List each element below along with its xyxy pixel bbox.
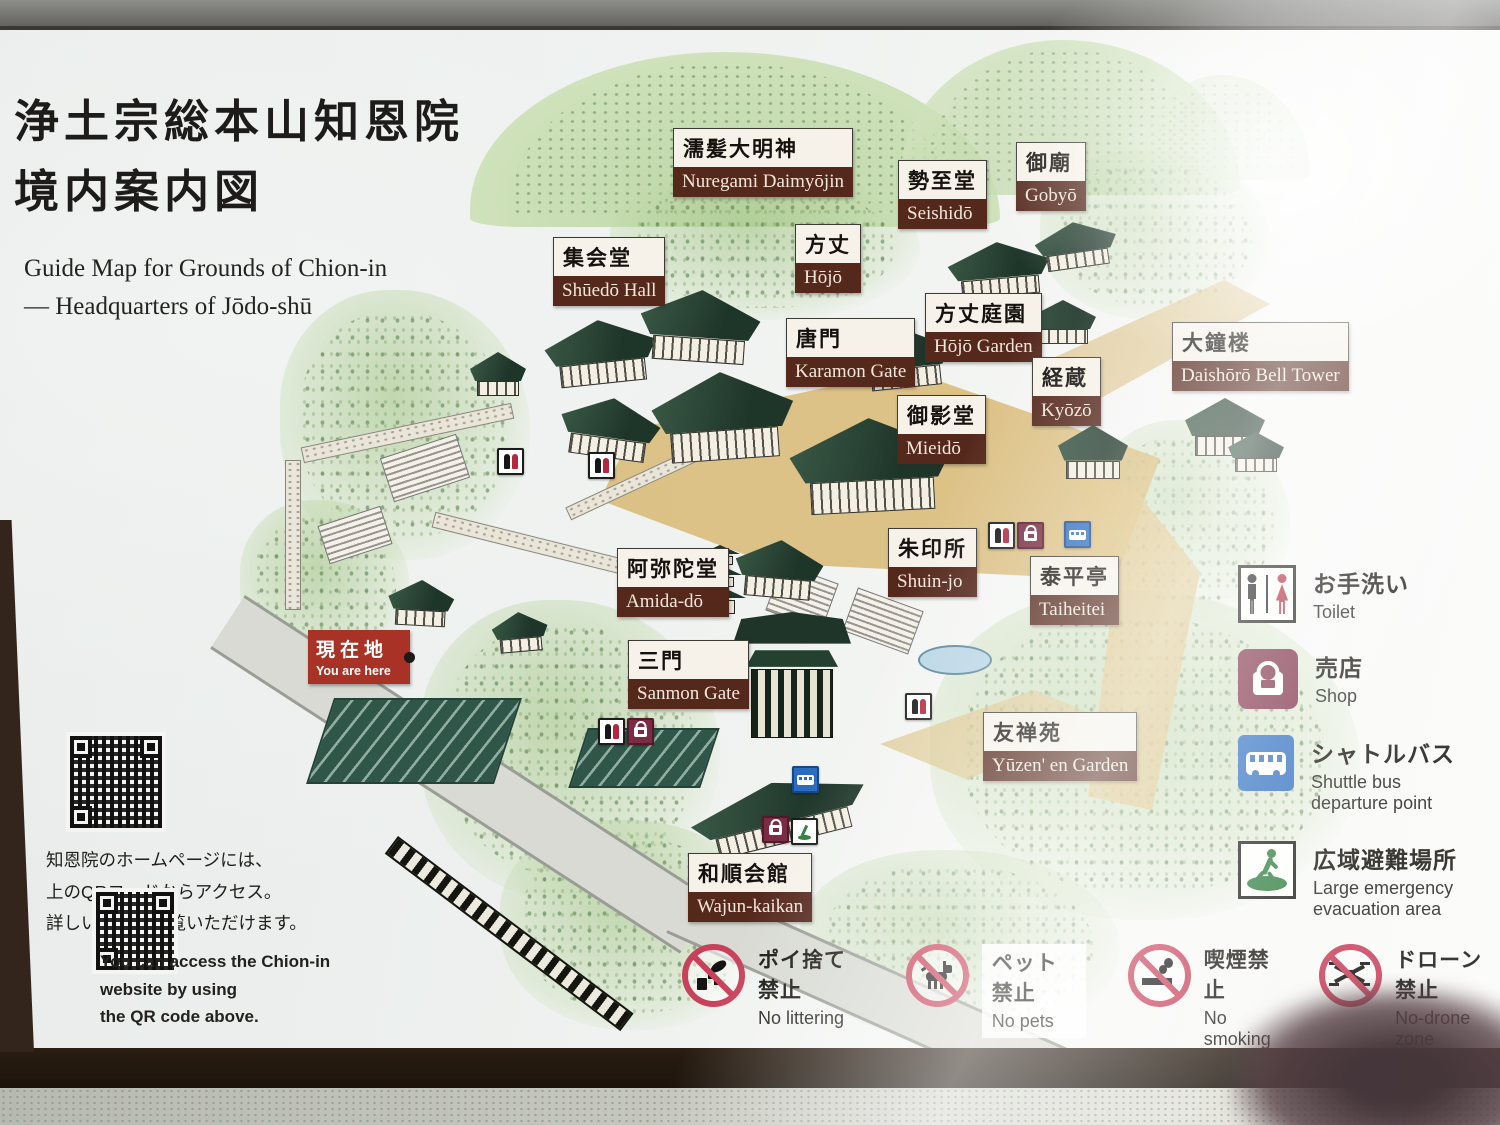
dog-glyph bbox=[934, 980, 937, 989]
notice-jp: ペット禁止 bbox=[992, 947, 1076, 1007]
temple-building bbox=[649, 367, 797, 465]
notice-no-littering: ポイ捨て禁止No littering bbox=[682, 944, 864, 1050]
label-en: Yūzen' en Garden bbox=[983, 751, 1137, 781]
dog-glyph bbox=[928, 980, 931, 989]
shop-icon bbox=[627, 718, 654, 745]
label-en: Hōjō Garden bbox=[925, 332, 1042, 362]
foreground-blur bbox=[1230, 985, 1500, 1125]
notice-en: No pets bbox=[992, 1011, 1076, 1032]
label-sanmon-gate: 三門Sanmon Gate bbox=[628, 640, 749, 709]
building-roof bbox=[490, 610, 548, 641]
bag-glyph bbox=[769, 825, 782, 835]
temple-building bbox=[387, 578, 455, 627]
label-jp: 方丈庭園 bbox=[925, 293, 1042, 332]
gate-roof bbox=[733, 612, 851, 644]
label-en: Wajun-kaikan bbox=[688, 892, 812, 922]
qr-finder bbox=[70, 736, 92, 758]
trash-can-glyph bbox=[697, 978, 707, 990]
label-en: Taiheitei bbox=[1030, 595, 1119, 625]
shuttle-bus-icon bbox=[1064, 521, 1091, 548]
label-en: Nuregami Daimyōjin bbox=[673, 167, 853, 197]
label-jp: 和順会館 bbox=[688, 853, 812, 892]
building-wall bbox=[810, 477, 935, 515]
bus-glyph bbox=[1069, 530, 1086, 540]
sign-title-english: Guide Map for Grounds of Chion-in — Head… bbox=[24, 250, 464, 325]
temple-building bbox=[1228, 432, 1284, 472]
qr-finder bbox=[140, 736, 162, 758]
notice-en: No littering bbox=[758, 1008, 864, 1029]
female-figure bbox=[512, 454, 518, 469]
label-en: Karamon Gate bbox=[786, 357, 915, 387]
evacuation-icon bbox=[1238, 841, 1296, 899]
building-roof bbox=[470, 352, 526, 381]
pond bbox=[918, 645, 992, 675]
label-jp: 泰平亭 bbox=[1030, 556, 1119, 595]
building-roof bbox=[1058, 425, 1128, 461]
legend-en: Large emergency evacuation area bbox=[1313, 878, 1457, 920]
bus-glyph bbox=[797, 775, 814, 785]
evacuation-icon bbox=[791, 818, 818, 845]
building-roof bbox=[1185, 398, 1265, 436]
label-jp: 濡髪大明神 bbox=[673, 128, 853, 167]
label-wajun-kaikan: 和順会館Wajun-kaikan bbox=[688, 853, 812, 922]
label-jp: 唐門 bbox=[786, 318, 915, 357]
qr-note-english: You can access the Chion-in website by u… bbox=[100, 948, 330, 1031]
label-en: Daishōrō Bell Tower bbox=[1172, 361, 1349, 391]
label-en: Kyōzō bbox=[1032, 396, 1101, 426]
label-jp: 大鐘楼 bbox=[1172, 322, 1349, 361]
bag-glyph bbox=[1253, 672, 1283, 695]
female-figure bbox=[603, 458, 609, 473]
building-wall bbox=[395, 609, 446, 627]
legend-jp: シャトルバス bbox=[1311, 735, 1455, 769]
label-hojo-garden: 方丈庭園Hōjō Garden bbox=[925, 293, 1042, 362]
label-en: Seishidō bbox=[898, 199, 987, 229]
toilet-icon bbox=[988, 522, 1015, 549]
temple-building bbox=[490, 610, 549, 655]
male-figure bbox=[504, 454, 510, 469]
gate-pillars bbox=[751, 669, 834, 738]
legend-item-shop: 売店Shop bbox=[1238, 649, 1494, 709]
label-karamon-gate: 唐門Karamon Gate bbox=[786, 318, 915, 387]
shuttle-bus-icon bbox=[1238, 735, 1294, 791]
drone-glyph bbox=[1360, 962, 1370, 965]
evacuation-oval bbox=[1247, 876, 1287, 891]
qr-note-japanese: 知恩院のホームページには、 上のQRコードからアクセス。 詳しい情報がご覧いただ… bbox=[46, 845, 307, 940]
bag-glyph bbox=[634, 727, 647, 737]
label-jp: 経蔵 bbox=[1032, 357, 1101, 396]
you-are-here-marker: 現在地 You are here bbox=[308, 630, 410, 684]
building-roof bbox=[734, 536, 825, 582]
label-jp: 方丈 bbox=[795, 224, 861, 263]
wall-shadow-band bbox=[0, 0, 1500, 30]
label-jp: 三門 bbox=[628, 640, 749, 679]
building-roof bbox=[649, 367, 795, 435]
label-jp: 阿弥陀堂 bbox=[617, 548, 729, 587]
label-en: Amida-dō bbox=[617, 587, 729, 617]
qr-finder bbox=[96, 892, 118, 914]
label-en: Shuin-jo bbox=[888, 567, 977, 597]
toilet-icon bbox=[1238, 565, 1296, 623]
shop-icon bbox=[1238, 649, 1298, 709]
label-jp: 御廟 bbox=[1016, 142, 1086, 181]
female-figure bbox=[1003, 528, 1009, 543]
label-jp: 朱印所 bbox=[888, 528, 977, 567]
female-figure bbox=[613, 724, 619, 739]
current-location-dot bbox=[404, 652, 415, 663]
you-are-here-jp: 現在地 bbox=[316, 635, 402, 662]
building-roof bbox=[388, 578, 455, 612]
divider bbox=[1266, 575, 1268, 613]
label-amida-do: 阿弥陀堂Amida-dō bbox=[617, 548, 729, 617]
label-en: Sanmon Gate bbox=[628, 679, 749, 709]
label-en: Shūedō Hall bbox=[553, 276, 665, 306]
label-seishido: 勢至堂Seishidō bbox=[898, 160, 987, 229]
toilet-icon bbox=[588, 452, 615, 479]
notice-jp: ポイ捨て禁止 bbox=[758, 944, 864, 1004]
label-en: Mieidō bbox=[897, 434, 986, 464]
building-roof bbox=[1228, 432, 1284, 458]
label-gobyo: 御廟Gobyō bbox=[1016, 142, 1086, 211]
shuttle-bus-icon bbox=[792, 766, 819, 793]
legend-en: Shop bbox=[1315, 686, 1363, 707]
male-figure bbox=[605, 724, 611, 739]
legend-en: Toilet bbox=[1313, 602, 1409, 623]
building-wall bbox=[1235, 458, 1278, 472]
toilet-icon bbox=[497, 448, 524, 475]
male-figure bbox=[595, 458, 601, 473]
legend-item-shuttle-bus: シャトルバスShuttle bus departure point bbox=[1238, 735, 1494, 814]
legend-jp: 広域避難場所 bbox=[1313, 841, 1457, 875]
parking-lot bbox=[306, 698, 522, 784]
bus-glyph bbox=[1246, 752, 1286, 775]
label-mieido: 御影堂Mieidō bbox=[897, 395, 986, 464]
label-yuzen-en-garden: 友禅苑Yūzen' en Garden bbox=[983, 712, 1137, 781]
label-en: Hōjō bbox=[795, 263, 861, 293]
shop-icon bbox=[1017, 522, 1044, 549]
no-pets-icon bbox=[906, 944, 969, 1007]
qr-finder bbox=[152, 892, 174, 914]
legend-jp: 売店 bbox=[1315, 649, 1363, 683]
qr-code bbox=[70, 736, 162, 828]
you-are-here-en: You are here bbox=[316, 664, 402, 678]
kyozo-building bbox=[1058, 425, 1128, 479]
building-wall bbox=[477, 381, 520, 396]
label-shuin-jo: 朱印所Shuin-jo bbox=[888, 528, 977, 597]
photo-of-guide-map-sign: 浄土宗総本山知恩院 境内案内図 Guide Map for Grounds of… bbox=[0, 0, 1500, 1125]
female-figure bbox=[1273, 574, 1291, 614]
runner-glyph bbox=[797, 824, 813, 840]
label-hojo: 方丈Hōjō bbox=[795, 224, 861, 293]
qr-finder bbox=[70, 806, 92, 828]
label-kyozo: 経蔵Kyōzō bbox=[1032, 357, 1101, 426]
sign-title-japanese: 浄土宗総本山知恩院 境内案内図 bbox=[14, 88, 474, 228]
temple-building bbox=[733, 536, 826, 601]
storehouse-building bbox=[470, 352, 526, 396]
label-jp: 御影堂 bbox=[897, 395, 986, 434]
legend-item-toilet: お手洗いToilet bbox=[1238, 565, 1494, 623]
legend-jp: お手洗い bbox=[1313, 565, 1409, 599]
label-jp: 友禅苑 bbox=[983, 712, 1137, 751]
label-jp: 集会堂 bbox=[553, 237, 665, 276]
label-shuedo-hall: 集会堂Shūedō Hall bbox=[553, 237, 665, 306]
sanmon-gate-building bbox=[733, 612, 851, 744]
building-wall bbox=[1038, 329, 1088, 344]
male-figure bbox=[995, 528, 1001, 543]
male-figure bbox=[912, 699, 918, 714]
no-smoking-icon bbox=[1128, 944, 1191, 1007]
label-nuregami-daimyojin: 濡髪大明神Nuregami Daimyōjin bbox=[673, 128, 853, 197]
label-jp: 勢至堂 bbox=[898, 160, 987, 199]
shop-icon bbox=[762, 816, 789, 843]
notice-no-pets: ペット禁止No pets bbox=[906, 944, 1086, 1050]
bag-glyph bbox=[1024, 531, 1037, 541]
gate-roof bbox=[746, 648, 838, 666]
building-wall bbox=[1066, 461, 1119, 479]
label-daishoro-bell-tower: 大鐘楼Daishōrō Bell Tower bbox=[1172, 322, 1349, 391]
label-taiheitei: 泰平亭Taiheitei bbox=[1030, 556, 1119, 625]
dog-glyph bbox=[943, 961, 946, 967]
toilet-icon bbox=[905, 693, 932, 720]
legend-item-evacuation: 広域避難場所Large emergency evacuation area bbox=[1238, 841, 1494, 920]
toilet-icon bbox=[598, 718, 625, 745]
male-figure bbox=[1243, 574, 1261, 614]
female-figure bbox=[920, 699, 926, 714]
legend-en: Shuttle bus departure point bbox=[1311, 772, 1455, 814]
stone-wall bbox=[285, 460, 301, 610]
no-littering-icon bbox=[682, 944, 745, 1007]
label-en: Gobyō bbox=[1016, 181, 1086, 211]
legend: お手洗いToilet 売店Shop シャトルバスShuttle bus depa… bbox=[1238, 565, 1494, 946]
